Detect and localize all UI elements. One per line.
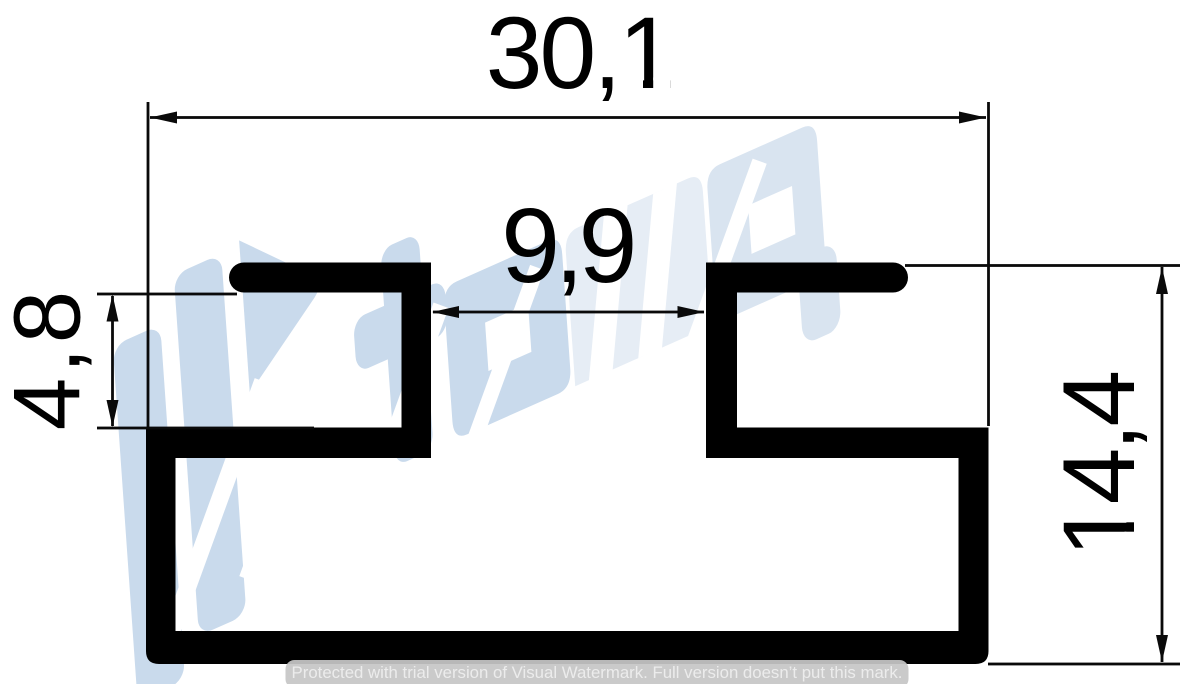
svg-text:9,9: 9,9 xyxy=(501,187,632,305)
svg-text:14,4: 14,4 xyxy=(1042,373,1156,558)
svg-text:Protected with trial version o: Protected with trial version of Visual W… xyxy=(292,663,903,682)
svg-text:30,1: 30,1 xyxy=(486,0,673,110)
svg-text:4,8: 4,8 xyxy=(0,287,101,430)
